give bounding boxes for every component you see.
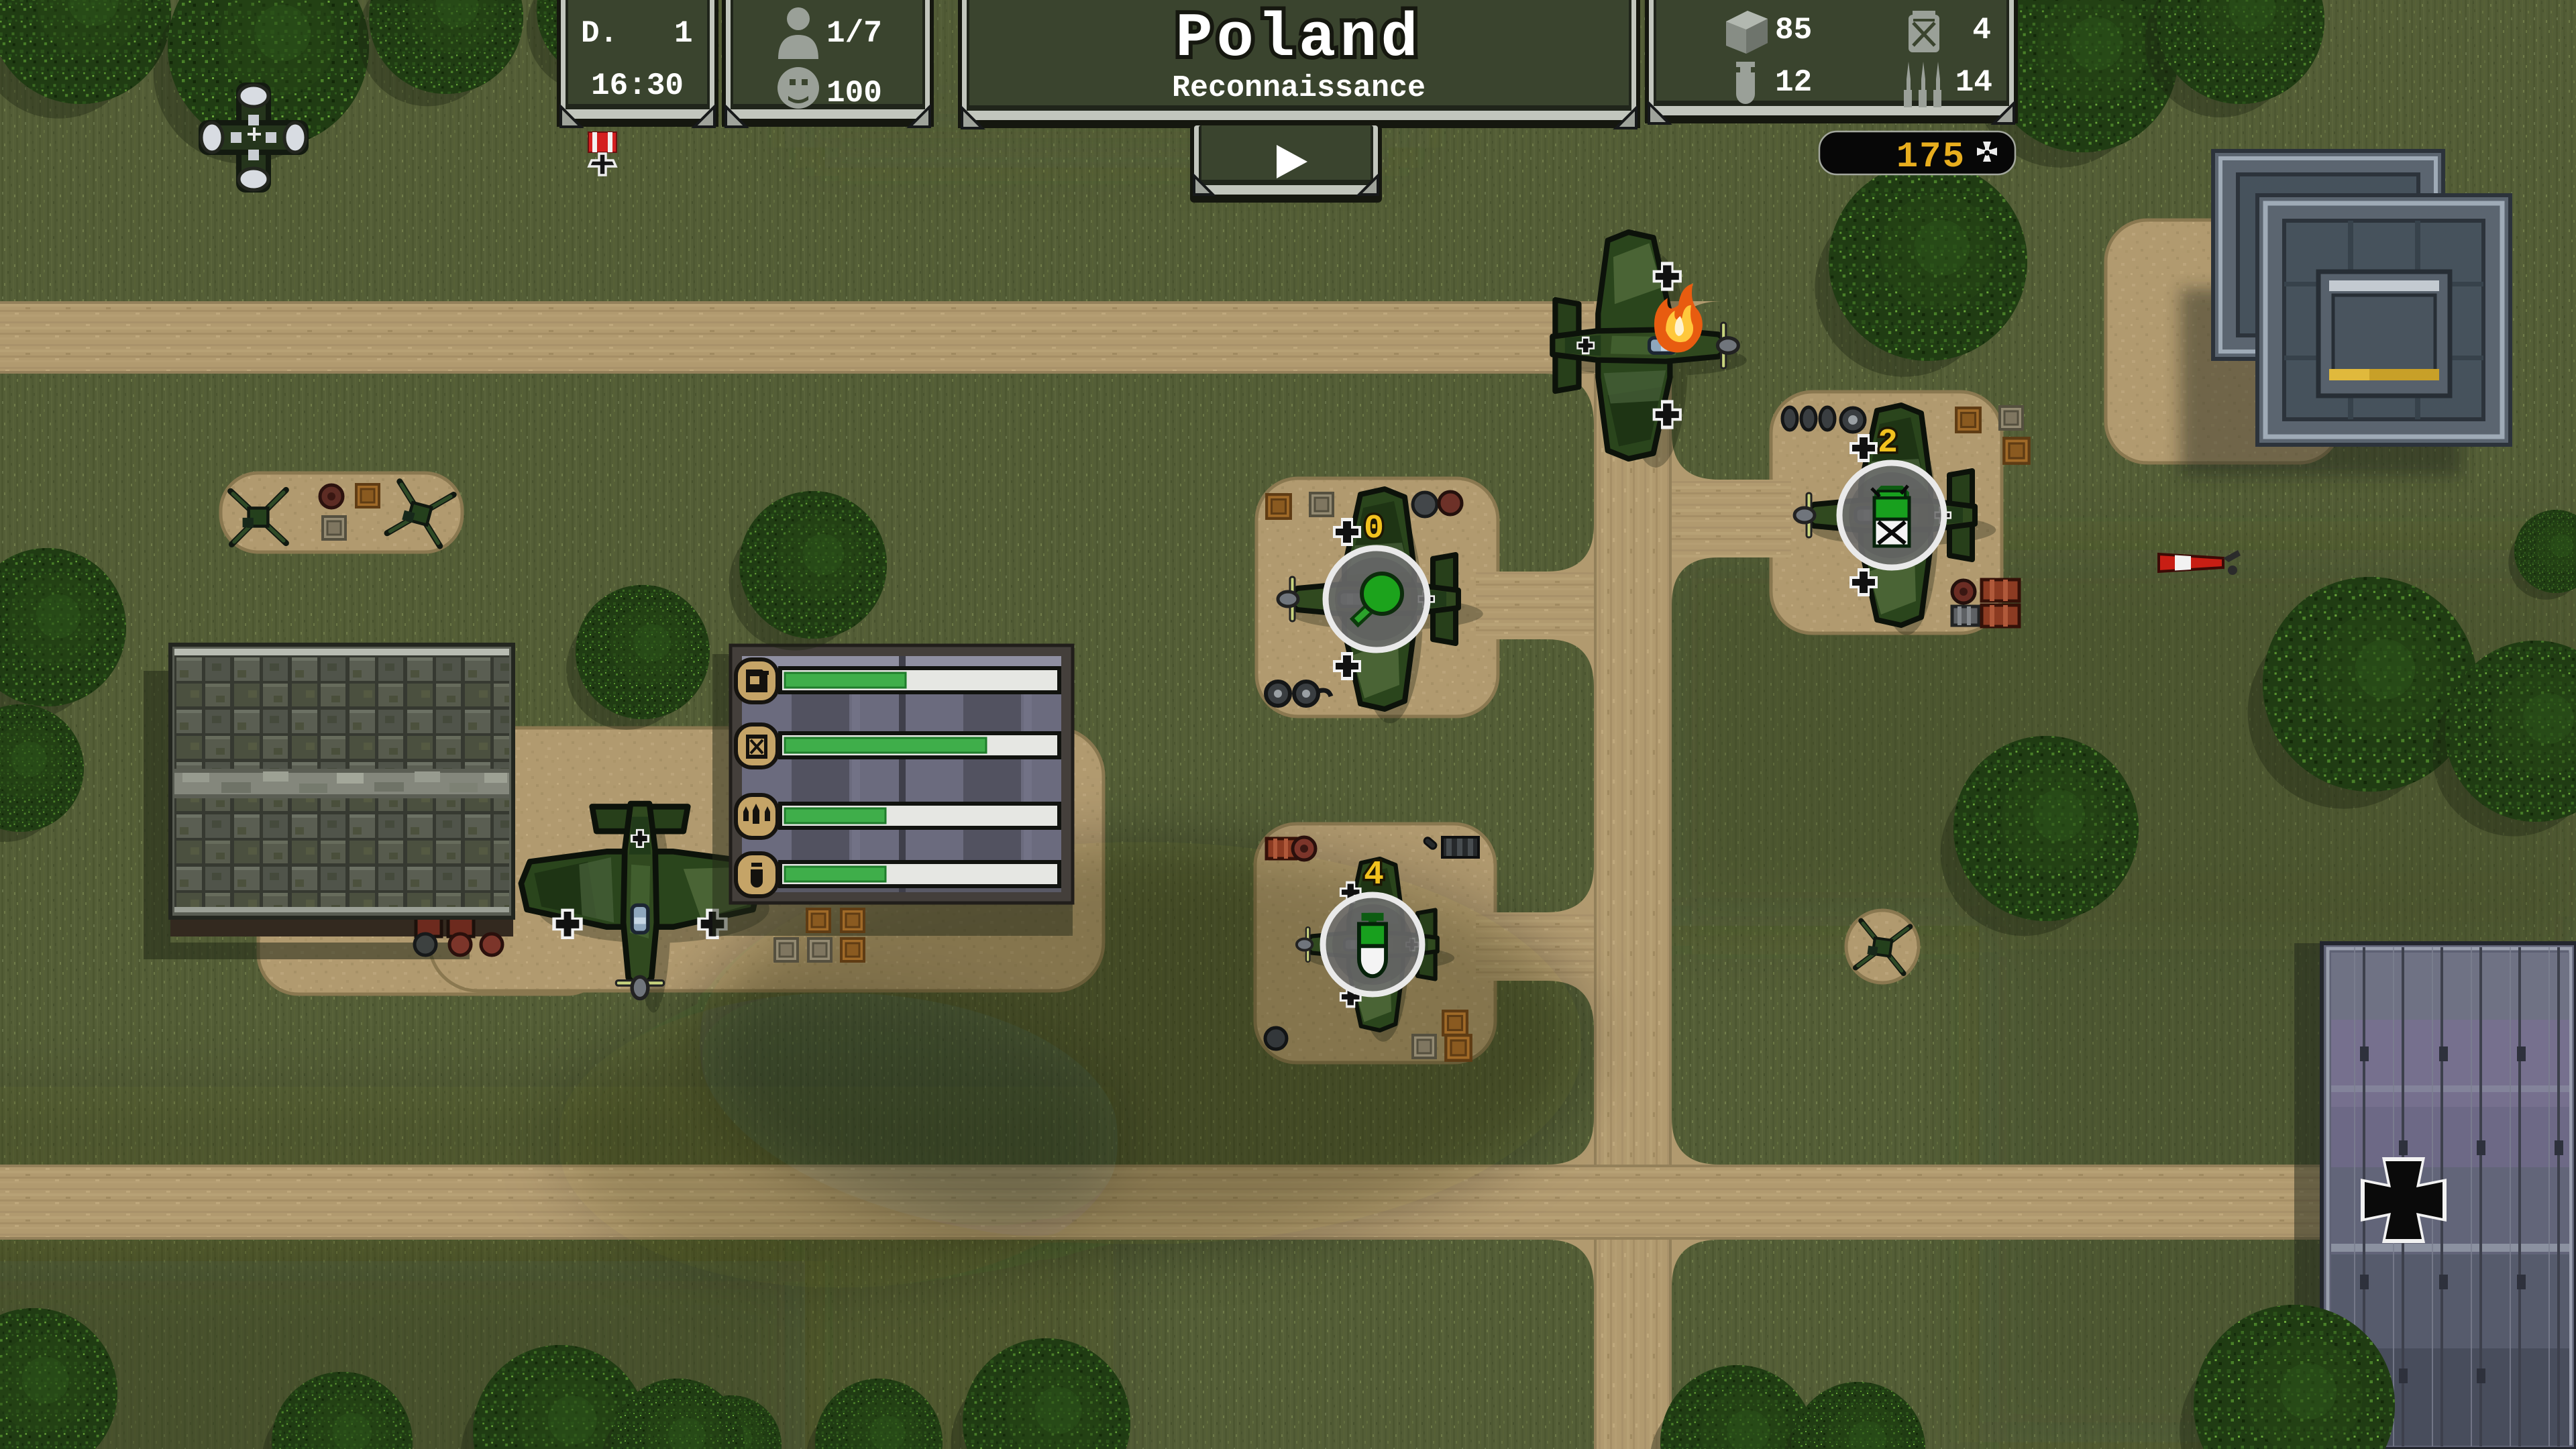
svg-text:175: 175 xyxy=(1896,137,1966,178)
svg-text:14: 14 xyxy=(1955,65,1992,100)
svg-text:12: 12 xyxy=(1775,65,1812,100)
svg-text:1/7: 1/7 xyxy=(826,16,882,51)
svg-text:4: 4 xyxy=(1364,856,1384,894)
svg-text:Poland: Poland xyxy=(1175,3,1421,74)
svg-text:2: 2 xyxy=(1878,424,1898,462)
svg-text:D.: D. xyxy=(581,16,618,51)
svg-text:1: 1 xyxy=(674,16,693,51)
svg-text:4: 4 xyxy=(1972,13,1991,48)
svg-text:0: 0 xyxy=(1364,510,1384,548)
svg-text:Reconnaissance: Reconnaissance xyxy=(1172,71,1426,105)
svg-text:16:30: 16:30 xyxy=(591,68,684,103)
svg-text:100: 100 xyxy=(826,76,882,111)
svg-text:85: 85 xyxy=(1775,13,1812,48)
